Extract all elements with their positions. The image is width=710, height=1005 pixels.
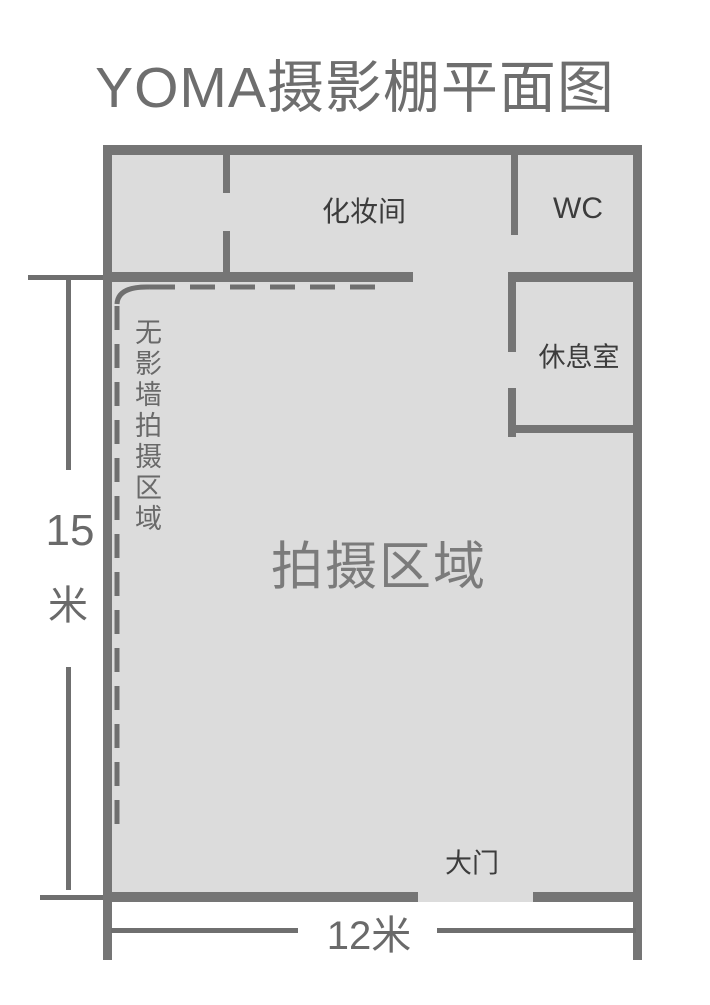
wall-bottom-left-of-door <box>103 892 418 902</box>
page-title: YOMA摄影棚平面图 <box>0 42 710 124</box>
dim-bottom-line-right <box>437 928 636 933</box>
wall-wc-partition <box>511 155 518 235</box>
dimension-width-label: 12米 <box>327 903 412 961</box>
wall-bottom-right-of-door <box>533 892 642 902</box>
dim-left-bottom-tick <box>40 895 103 900</box>
makeup-room-label: 化妆间 <box>322 190 406 230</box>
dimension-height-unit: 米 <box>48 573 88 631</box>
dim-left-line-lower <box>66 667 71 890</box>
lounge-room-label: 休息室 <box>539 336 620 375</box>
main-door-label: 大门 <box>445 842 499 881</box>
dimension-height-value: 15 <box>46 506 95 556</box>
wall-right <box>633 145 642 960</box>
wall-makeup-divider-lower <box>223 231 230 272</box>
dim-left-line-upper <box>66 277 71 470</box>
floor-plan-page: YOMA摄影棚平面图 化妆间 WC 休息室 拍摄区域 无影墙拍摄区域 大门 15… <box>0 0 710 1005</box>
dashed-corner-arc <box>117 287 150 304</box>
dim-bottom-line-left <box>111 928 298 933</box>
seamless-wall-area-label: 无影墙拍摄区域 <box>127 318 166 535</box>
wall-lounge-bottom <box>508 425 642 433</box>
wc-room-label: WC <box>553 192 603 226</box>
wall-lounge-top <box>508 272 642 282</box>
wall-makeup-divider-upper <box>223 155 230 193</box>
wall-lounge-left-upper <box>508 282 516 352</box>
shooting-area-label: 拍摄区域 <box>271 525 487 600</box>
wall-top <box>103 145 642 155</box>
